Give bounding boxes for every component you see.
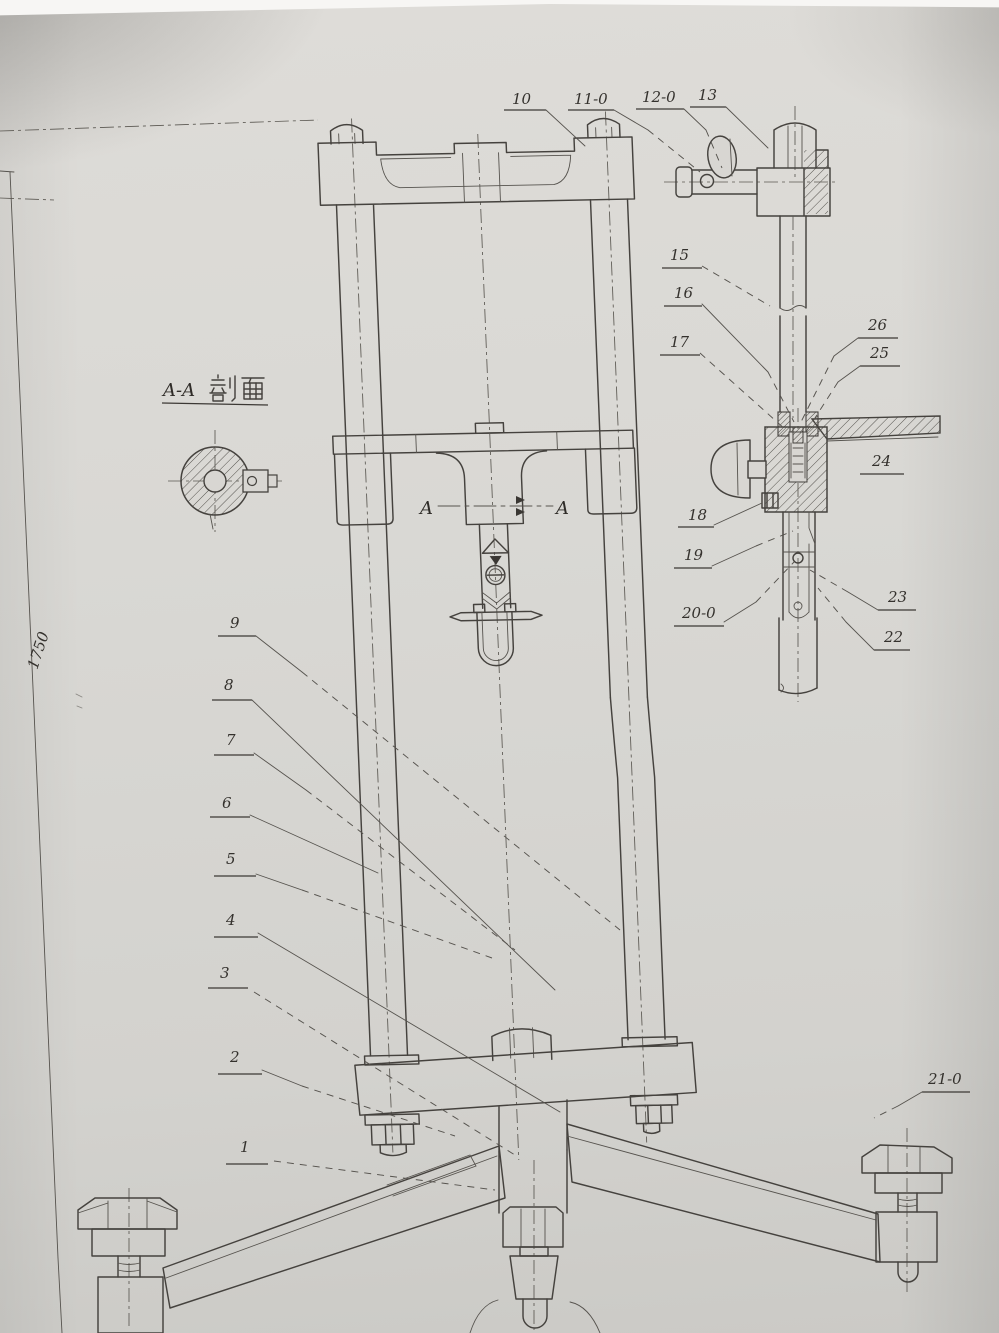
mid-clamp-detail xyxy=(711,408,940,702)
callout-26: 26 xyxy=(800,316,898,424)
svg-text:4: 4 xyxy=(225,911,236,929)
center-foot xyxy=(470,1150,600,1333)
section-view-label: A-A xyxy=(161,375,268,405)
callout-8: 8 xyxy=(212,676,555,990)
svg-text:18: 18 xyxy=(688,506,707,524)
svg-text:19: 19 xyxy=(684,546,704,564)
tripod-base xyxy=(78,1100,952,1333)
callout-16: 16 xyxy=(664,284,794,422)
callout-1: 1 xyxy=(226,1138,495,1190)
callout-24: 24 xyxy=(860,452,904,474)
main-assembly xyxy=(317,110,699,1163)
callout-19: 19 xyxy=(674,531,793,568)
callout-4: 4 xyxy=(214,911,560,1112)
aa-letter-left: A xyxy=(418,498,433,519)
callout-20-0: 20-0 xyxy=(674,562,794,626)
svg-text:10: 10 xyxy=(512,90,532,108)
svg-text:24: 24 xyxy=(871,452,891,470)
callout-5: 5 xyxy=(214,850,492,958)
callout-9: 9 xyxy=(218,614,620,930)
left-dimension-1750: 1750 xyxy=(24,629,53,671)
svg-text:1: 1 xyxy=(240,1138,250,1156)
callout-23: 23 xyxy=(810,570,916,610)
svg-text:7: 7 xyxy=(226,731,236,749)
svg-text:6: 6 xyxy=(222,794,232,812)
svg-text:25: 25 xyxy=(869,344,889,362)
svg-text:8: 8 xyxy=(224,676,234,694)
callout-13: 13 xyxy=(690,86,768,148)
aa-section-detail: A-A xyxy=(161,375,286,532)
callout-10: 10 xyxy=(504,90,585,146)
section-label-latin: A-A xyxy=(161,380,195,401)
drawing-photo: 1750 A-A xyxy=(0,0,999,1333)
top-crosshead xyxy=(317,118,634,205)
center-rod-hook xyxy=(446,523,544,666)
svg-text:5: 5 xyxy=(226,850,236,868)
svg-text:13: 13 xyxy=(698,86,717,104)
svg-text:22: 22 xyxy=(883,628,903,646)
svg-text:16: 16 xyxy=(674,284,694,302)
svg-text:21-0: 21-0 xyxy=(927,1070,962,1088)
middle-crossbar xyxy=(332,420,637,527)
svg-text:11-0: 11-0 xyxy=(574,90,608,108)
aa-letter-right: A xyxy=(554,498,569,519)
callout-18: 18 xyxy=(678,503,762,527)
callout-3: 3 xyxy=(208,964,515,1155)
svg-text:3: 3 xyxy=(220,964,230,982)
svg-text:15: 15 xyxy=(670,246,689,264)
part-callouts: 10 11-0 12-0 13 15 16 17 26 25 24 18 19 … xyxy=(208,86,970,1190)
svg-text:9: 9 xyxy=(230,614,240,632)
right-foot-screw xyxy=(862,1128,952,1292)
svg-text:2: 2 xyxy=(229,1048,240,1066)
svg-text:26: 26 xyxy=(867,316,888,334)
aa-cut-line: A A xyxy=(418,496,569,519)
section-label-cjk-glyphs xyxy=(210,375,264,401)
right-column xyxy=(590,199,665,1040)
sheet-border: 1750 xyxy=(0,120,318,1333)
left-foot-screw xyxy=(78,1188,177,1333)
svg-text:23: 23 xyxy=(887,588,907,606)
blueprint-linework: 1750 A-A xyxy=(0,0,999,1333)
svg-text:12-0: 12-0 xyxy=(642,88,676,106)
svg-text:20-0: 20-0 xyxy=(681,604,716,622)
callout-21-0: 21-0 xyxy=(874,1070,970,1118)
callout-17: 17 xyxy=(660,333,786,430)
top-clamp-detail xyxy=(664,106,838,418)
svg-text:17: 17 xyxy=(670,333,690,351)
